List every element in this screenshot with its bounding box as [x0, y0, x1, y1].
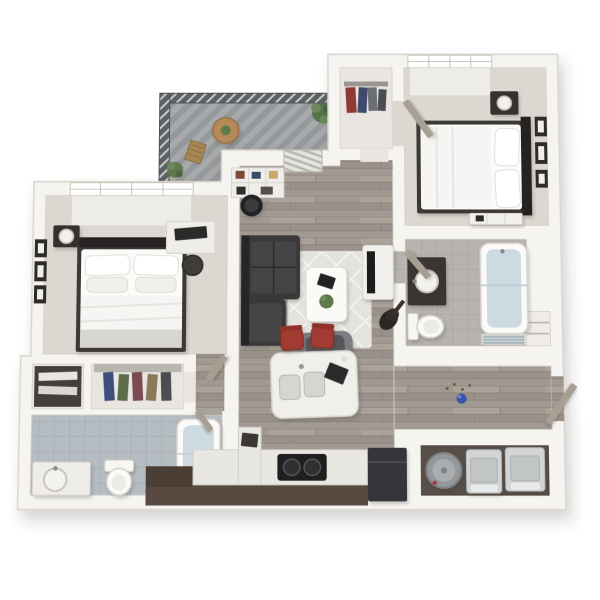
bar-stool: [311, 323, 335, 348]
hall-closet: [344, 82, 388, 114]
bed: [416, 117, 532, 216]
lamp: [59, 229, 73, 243]
dryer-lid: [511, 483, 540, 490]
balcony-door-blinds: [284, 150, 322, 172]
potted-plant-sw: [167, 162, 183, 178]
hanging-clothes: [103, 372, 172, 401]
closet-rail: [344, 82, 388, 87]
refrigerator: [368, 448, 407, 502]
vanity-sink: [32, 462, 90, 495]
table-plant: [221, 126, 231, 136]
lamp: [497, 96, 511, 110]
bedroom2-window: [408, 55, 492, 95]
heater-valve: [433, 481, 437, 485]
cooktop: [277, 454, 326, 481]
table-plant-leaf: [320, 295, 326, 301]
dryer-drum: [511, 456, 540, 481]
towel: [38, 386, 77, 395]
closet-shelf: [94, 364, 182, 372]
books: [252, 172, 261, 179]
laundry: [426, 448, 545, 493]
floor-plan-svg: [0, 4, 600, 600]
pillow: [494, 169, 521, 208]
shelf-item: [261, 187, 273, 195]
balcony-railing-north: [160, 93, 336, 103]
dryer: [505, 448, 545, 491]
entry-corridor-floor: [394, 366, 552, 429]
bed-throw: [80, 330, 182, 348]
coffee-table: [306, 267, 347, 321]
tub-chair: [240, 195, 262, 217]
floor-plan-image: [0, 0, 600, 600]
cabinet-end: [146, 466, 193, 487]
toilet: [408, 313, 444, 339]
bathtub: [480, 243, 528, 333]
sofa-back: [241, 235, 250, 346]
books: [269, 171, 278, 179]
towel: [39, 372, 78, 381]
bistro-table: [213, 118, 239, 144]
hanging-clothes: [368, 87, 378, 111]
tv: [367, 251, 375, 293]
tv-console: [363, 245, 394, 299]
burner: [284, 459, 300, 475]
cabinet-front: [145, 485, 368, 506]
burner: [304, 459, 320, 475]
desk-chair: [182, 255, 202, 275]
washer-drum: [470, 458, 497, 483]
wall-frames: [34, 239, 47, 303]
closet2-opening: [360, 148, 388, 162]
books: [236, 171, 245, 179]
toilet: [104, 460, 133, 495]
bed: [76, 237, 187, 352]
pillow: [87, 277, 128, 292]
pillow: [133, 255, 178, 277]
walk-in-closet: [93, 364, 181, 401]
hanging-clothes: [378, 89, 387, 111]
wall-frames: [535, 117, 548, 188]
floor-plan-scene: [0, 4, 600, 600]
pillow: [136, 277, 177, 292]
washer: [466, 450, 502, 493]
sink-basin: [279, 375, 300, 400]
entry-niche: [526, 311, 551, 345]
chaise-cushion: [249, 303, 282, 341]
hanging-clothes: [345, 87, 356, 113]
pillow: [494, 128, 520, 167]
linen-nook: [34, 366, 82, 407]
small-appliance: [241, 433, 259, 448]
kitchen-island: [270, 350, 358, 418]
books: [236, 187, 245, 195]
dresser-item: [476, 215, 484, 221]
hanging-clothes: [357, 87, 367, 113]
water-heater: [426, 453, 461, 488]
faucet: [412, 279, 416, 283]
duvet: [420, 127, 491, 208]
towel-shelf: [481, 334, 526, 345]
bookcase: [231, 168, 283, 198]
headboard: [521, 117, 533, 216]
bar-stool: [280, 325, 304, 351]
dresser: [470, 213, 523, 224]
bedroom2-door-opening: [392, 101, 404, 146]
pillow: [85, 255, 130, 277]
sink-basin: [304, 372, 325, 397]
bathroom2-door-opening: [393, 251, 405, 283]
return-counter: [238, 427, 261, 485]
bedroom1-window: [70, 183, 194, 226]
closet1-opening: [183, 372, 195, 403]
washer-lid: [471, 485, 498, 492]
